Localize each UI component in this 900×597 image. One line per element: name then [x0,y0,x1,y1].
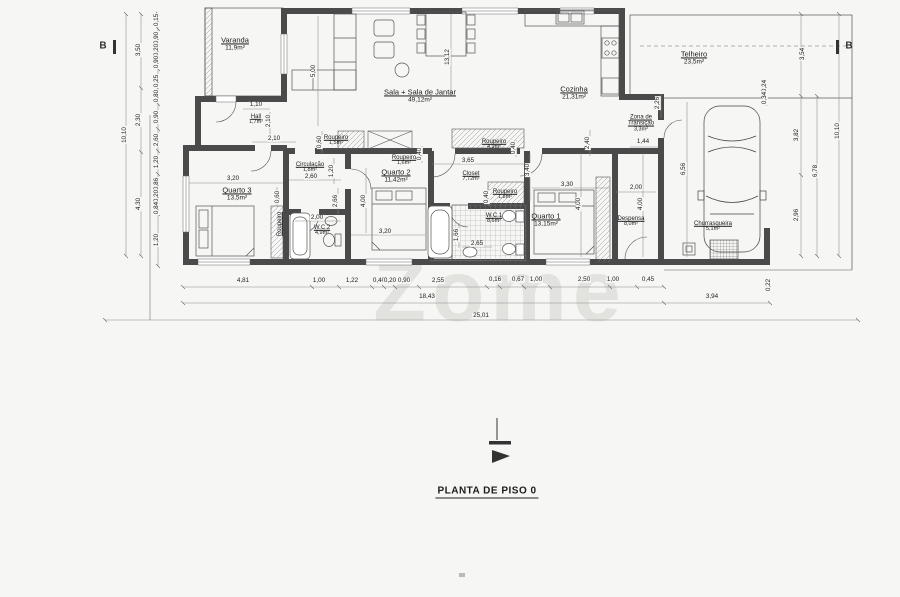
room-label: Varanda11,9m² [221,36,249,51]
dimension-label: 1,66 [454,228,460,242]
dimension-label: 3,54 [800,47,806,61]
room-label: Quarto 313,5m² [222,186,251,201]
dimension-label: 0,34 [762,91,768,105]
room-area: 1,7m² [249,120,263,126]
dimension-label: 6,56 [681,162,687,176]
dimension-label: 0,84 [154,201,160,215]
dimension-label: 4,81 [236,278,250,284]
dimension-label: 4,00 [361,194,367,208]
dimension-label: 18,43 [418,294,436,300]
dimension-label: 0,40 [417,147,423,161]
dimension-label: 2,50 [577,277,591,283]
dimension-label: 25,01 [472,313,490,319]
dimension-label: 2,10 [266,114,272,128]
section-marker-b-left: B [99,41,106,52]
room-label: Despensa8,0m² [617,216,644,228]
room-area: 11,9m² [221,45,249,52]
dimension-label: 1,10 [249,102,263,108]
dimension-label: 3,65 [461,158,475,164]
dimension-label: 0,15 [154,13,160,27]
dimension-label: 2,60 [304,174,318,180]
room-area: 23,5m² [681,59,707,66]
dimension-label: 3,20 [378,229,392,235]
dimension-label: 0,22 [766,278,772,292]
room-name: Varanda [221,36,249,44]
dimension-label: 0,16 [488,277,502,283]
dimension-label: 2,30 [136,113,142,127]
room-label: Closet7,72m² [462,171,479,183]
dimension-label: 3,30 [560,182,574,188]
room-label: Sala + Sala de Jantar49,12m² [384,88,456,103]
dimension-label: 3,82 [794,128,800,142]
room-label: W.C.24,9m² [314,225,330,237]
room-area: 13,15m² [531,221,560,228]
dimension-label: 10,10 [122,126,128,144]
dimension-label: 3,50 [136,43,142,57]
dimension-label: 2,55 [431,278,445,284]
room-area: 21,31m² [560,94,588,101]
room-name: Quarto 1 [531,212,560,220]
dimension-label: 10,10 [835,122,841,140]
room-area: 1,6m² [392,161,416,167]
dimension-label: 4,00 [576,197,582,211]
room-area: 4,9m² [482,145,506,151]
dimension-label: 0,40 [484,190,490,204]
dimension-label: 0,67 [511,277,525,283]
room-area: 8,6m² [486,219,502,225]
dimension-label: 3,94 [705,294,719,300]
dimension-label: 1,20 [154,155,160,169]
room-name: Zona de Transição [622,115,660,128]
room-area: 1,5m² [324,141,348,147]
room-label: W.C.18,6m² [486,213,502,225]
dimension-label: 3,20 [226,176,240,182]
dimension-label: 2,65 [470,241,484,247]
dimension-label: 2,00 [310,215,324,221]
room-label: Roupeiro1,6m² [392,155,416,167]
room-name: Quarto 2 [381,168,410,176]
dimension-label: 0,80 [154,89,160,103]
room-area: 13,5m² [222,195,251,202]
dimension-label: 0,60 [317,135,323,149]
room-name: Quarto 3 [222,186,251,194]
room-label: Telheiro23,5m² [681,50,707,65]
dimension-label: 2,60 [154,133,160,147]
dimension-label: 2,26 [655,96,661,110]
room-label: Roupeiro1,5m² [324,135,348,147]
room-label: Roupeiro [277,212,283,236]
dimension-label: 3,40 [525,163,531,177]
floor-plan-canvas: Zome [0,0,900,597]
room-label: Quarto 113,15m² [531,212,560,227]
room-area: 1,8m² [493,195,517,201]
dimension-label: 2,40 [585,136,591,150]
dimension-label: 1,20 [154,233,160,247]
room-area: 8,0m² [617,222,644,228]
dimension-label: 2,00 [629,185,643,191]
room-name: Telheiro [681,50,707,58]
dimension-label: 0,90 [154,110,160,124]
dimension-label: 0,40 [511,141,517,155]
room-label: Roupeiro4,9m² [482,139,506,151]
dimension-label: 1,22 [345,278,359,284]
room-label: Churrasqueira5,1m² [694,221,732,233]
room-label: Zona de Transição3,3m² [622,115,660,134]
dimension-label: 5,00 [311,64,317,78]
dimension-label: 0,90 [397,278,411,284]
dimension-label: 13,12 [445,48,451,66]
section-marker-b-right: B [845,41,852,52]
room-label: Cozinha21,31m² [560,85,588,100]
dimension-label: 0,25 [154,74,160,88]
room-name: Cozinha [560,85,588,93]
room-area: 7,72m² [462,177,479,183]
dimension-label: 0,90 [154,55,160,69]
drawing-title: PLANTA DE PISO 0 [435,486,538,499]
dimension-label: 1,00 [606,277,620,283]
dimension-label: 2,10 [267,136,281,142]
dimension-label: 0,60 [275,190,281,204]
dimension-label: 2,66 [333,194,339,208]
dimension-label: 1,00 [312,278,326,284]
dimension-label: 4,00 [638,197,644,211]
dimension-label: 6,78 [813,164,819,178]
dimension-label: 2,96 [794,208,800,222]
room-name: Roupeiro [277,212,283,236]
dimension-label: 1,20 [329,164,335,178]
room-area: 4,9m² [314,231,330,237]
scan-artifact [459,573,465,577]
room-area: 11,42m² [381,177,410,184]
room-label: Quarto 211,42m² [381,168,410,183]
dimension-label: 1,00 [529,277,543,283]
room-label: Roupeiro1,8m² [493,189,517,201]
dimension-label: 0,45 [641,277,655,283]
dimension-label: 1,44 [636,139,650,145]
dimension-label: 4,30 [136,197,142,211]
dimension-label: 0,20 [383,278,397,284]
room-label: Hall1,7m² [249,114,263,126]
room-name: Sala + Sala de Jantar [384,88,456,96]
labels-layer: Varanda11,9m²Hall1,7m²Sala + Sala de Jan… [0,0,900,597]
room-area: 5,1m² [694,227,732,233]
room-area: 3,3m² [622,128,660,134]
room-area: 49,12m² [384,97,456,104]
